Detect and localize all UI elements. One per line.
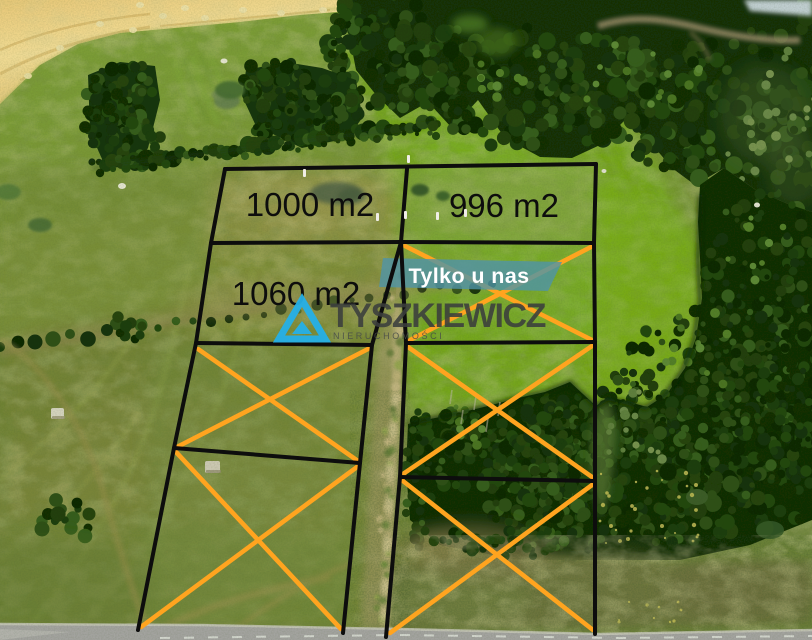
- svg-text:TYSZKIEWICZ: TYSZKIEWICZ: [330, 297, 546, 335]
- svg-text:Tylko u nas: Tylko u nas: [408, 264, 529, 288]
- svg-text:996 m2: 996 m2: [449, 187, 559, 224]
- svg-text:1000 m2: 1000 m2: [246, 186, 374, 223]
- svg-text:NIERUCHOMOŚCI: NIERUCHOMOŚCI: [333, 330, 444, 341]
